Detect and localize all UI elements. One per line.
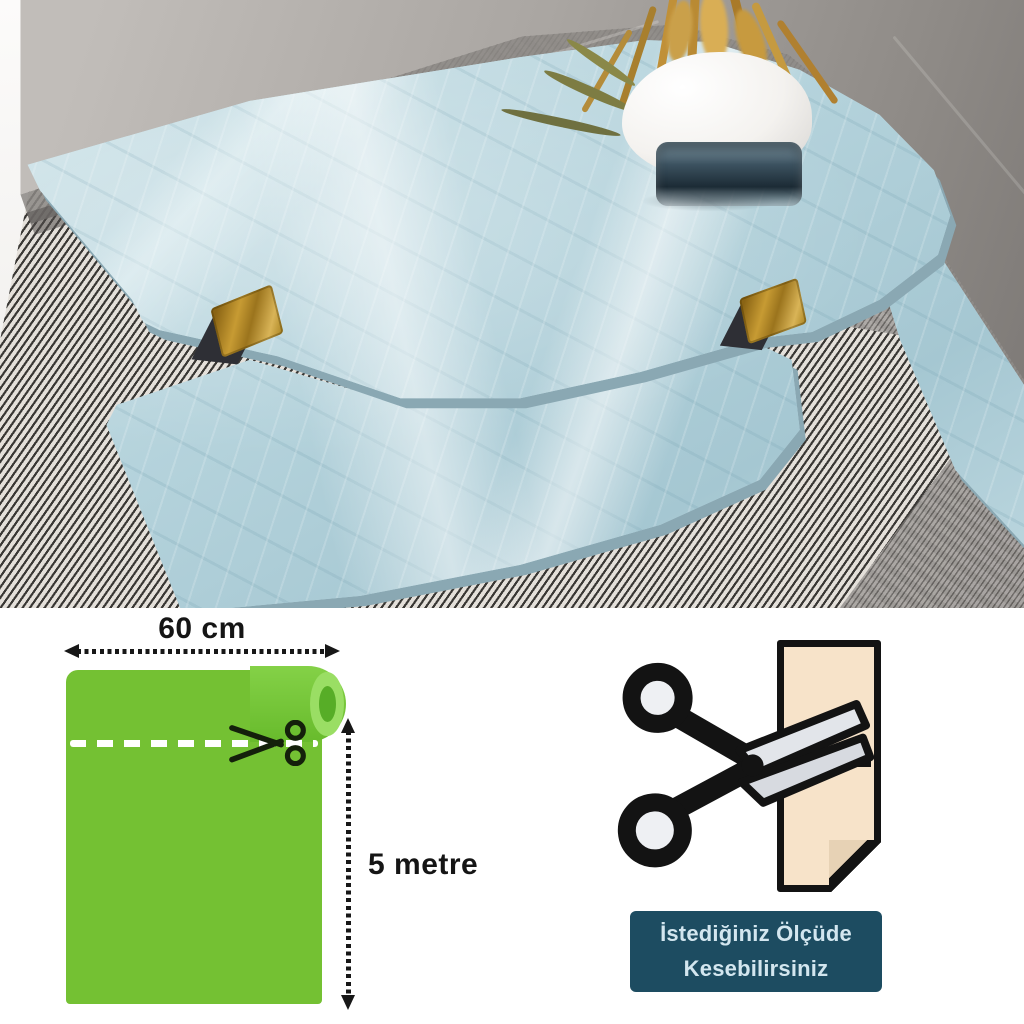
width-arrow [64, 644, 340, 659]
dotted-line-vertical [346, 731, 351, 997]
scissors-cutting-icon [605, 637, 884, 879]
dotted-line-horizontal [77, 649, 327, 654]
living-room-photo [0, 0, 1024, 608]
width-value: 60 cm [158, 612, 246, 645]
bracket-left-gold [210, 284, 283, 358]
arrowhead-down-icon [341, 995, 355, 1010]
bracket-right-gold [739, 278, 807, 345]
arrowhead-right-icon [325, 644, 340, 658]
badge-line-2: Kesebilirsiniz [684, 952, 829, 986]
product-infographic: 60 cm 5 metre [0, 0, 1024, 1024]
badge-line-1: İstediğiniz Ölçüde [660, 917, 852, 951]
roll-core-hole [319, 686, 336, 722]
length-arrow [340, 718, 357, 1010]
scissors-icon [228, 720, 312, 766]
vase-glass-base [656, 142, 802, 206]
gold-bracket-left [200, 296, 284, 362]
width-dimension-label: 60 cm [64, 612, 340, 646]
cut-to-size-badge: İstediğiniz Ölçüde Kesebilirsiniz [630, 911, 882, 992]
film-roll-diagram [64, 666, 346, 1006]
length-dimension-label: 5 metre [368, 848, 478, 882]
gold-bracket-right [730, 288, 810, 348]
length-value: 5 metre [368, 848, 478, 881]
